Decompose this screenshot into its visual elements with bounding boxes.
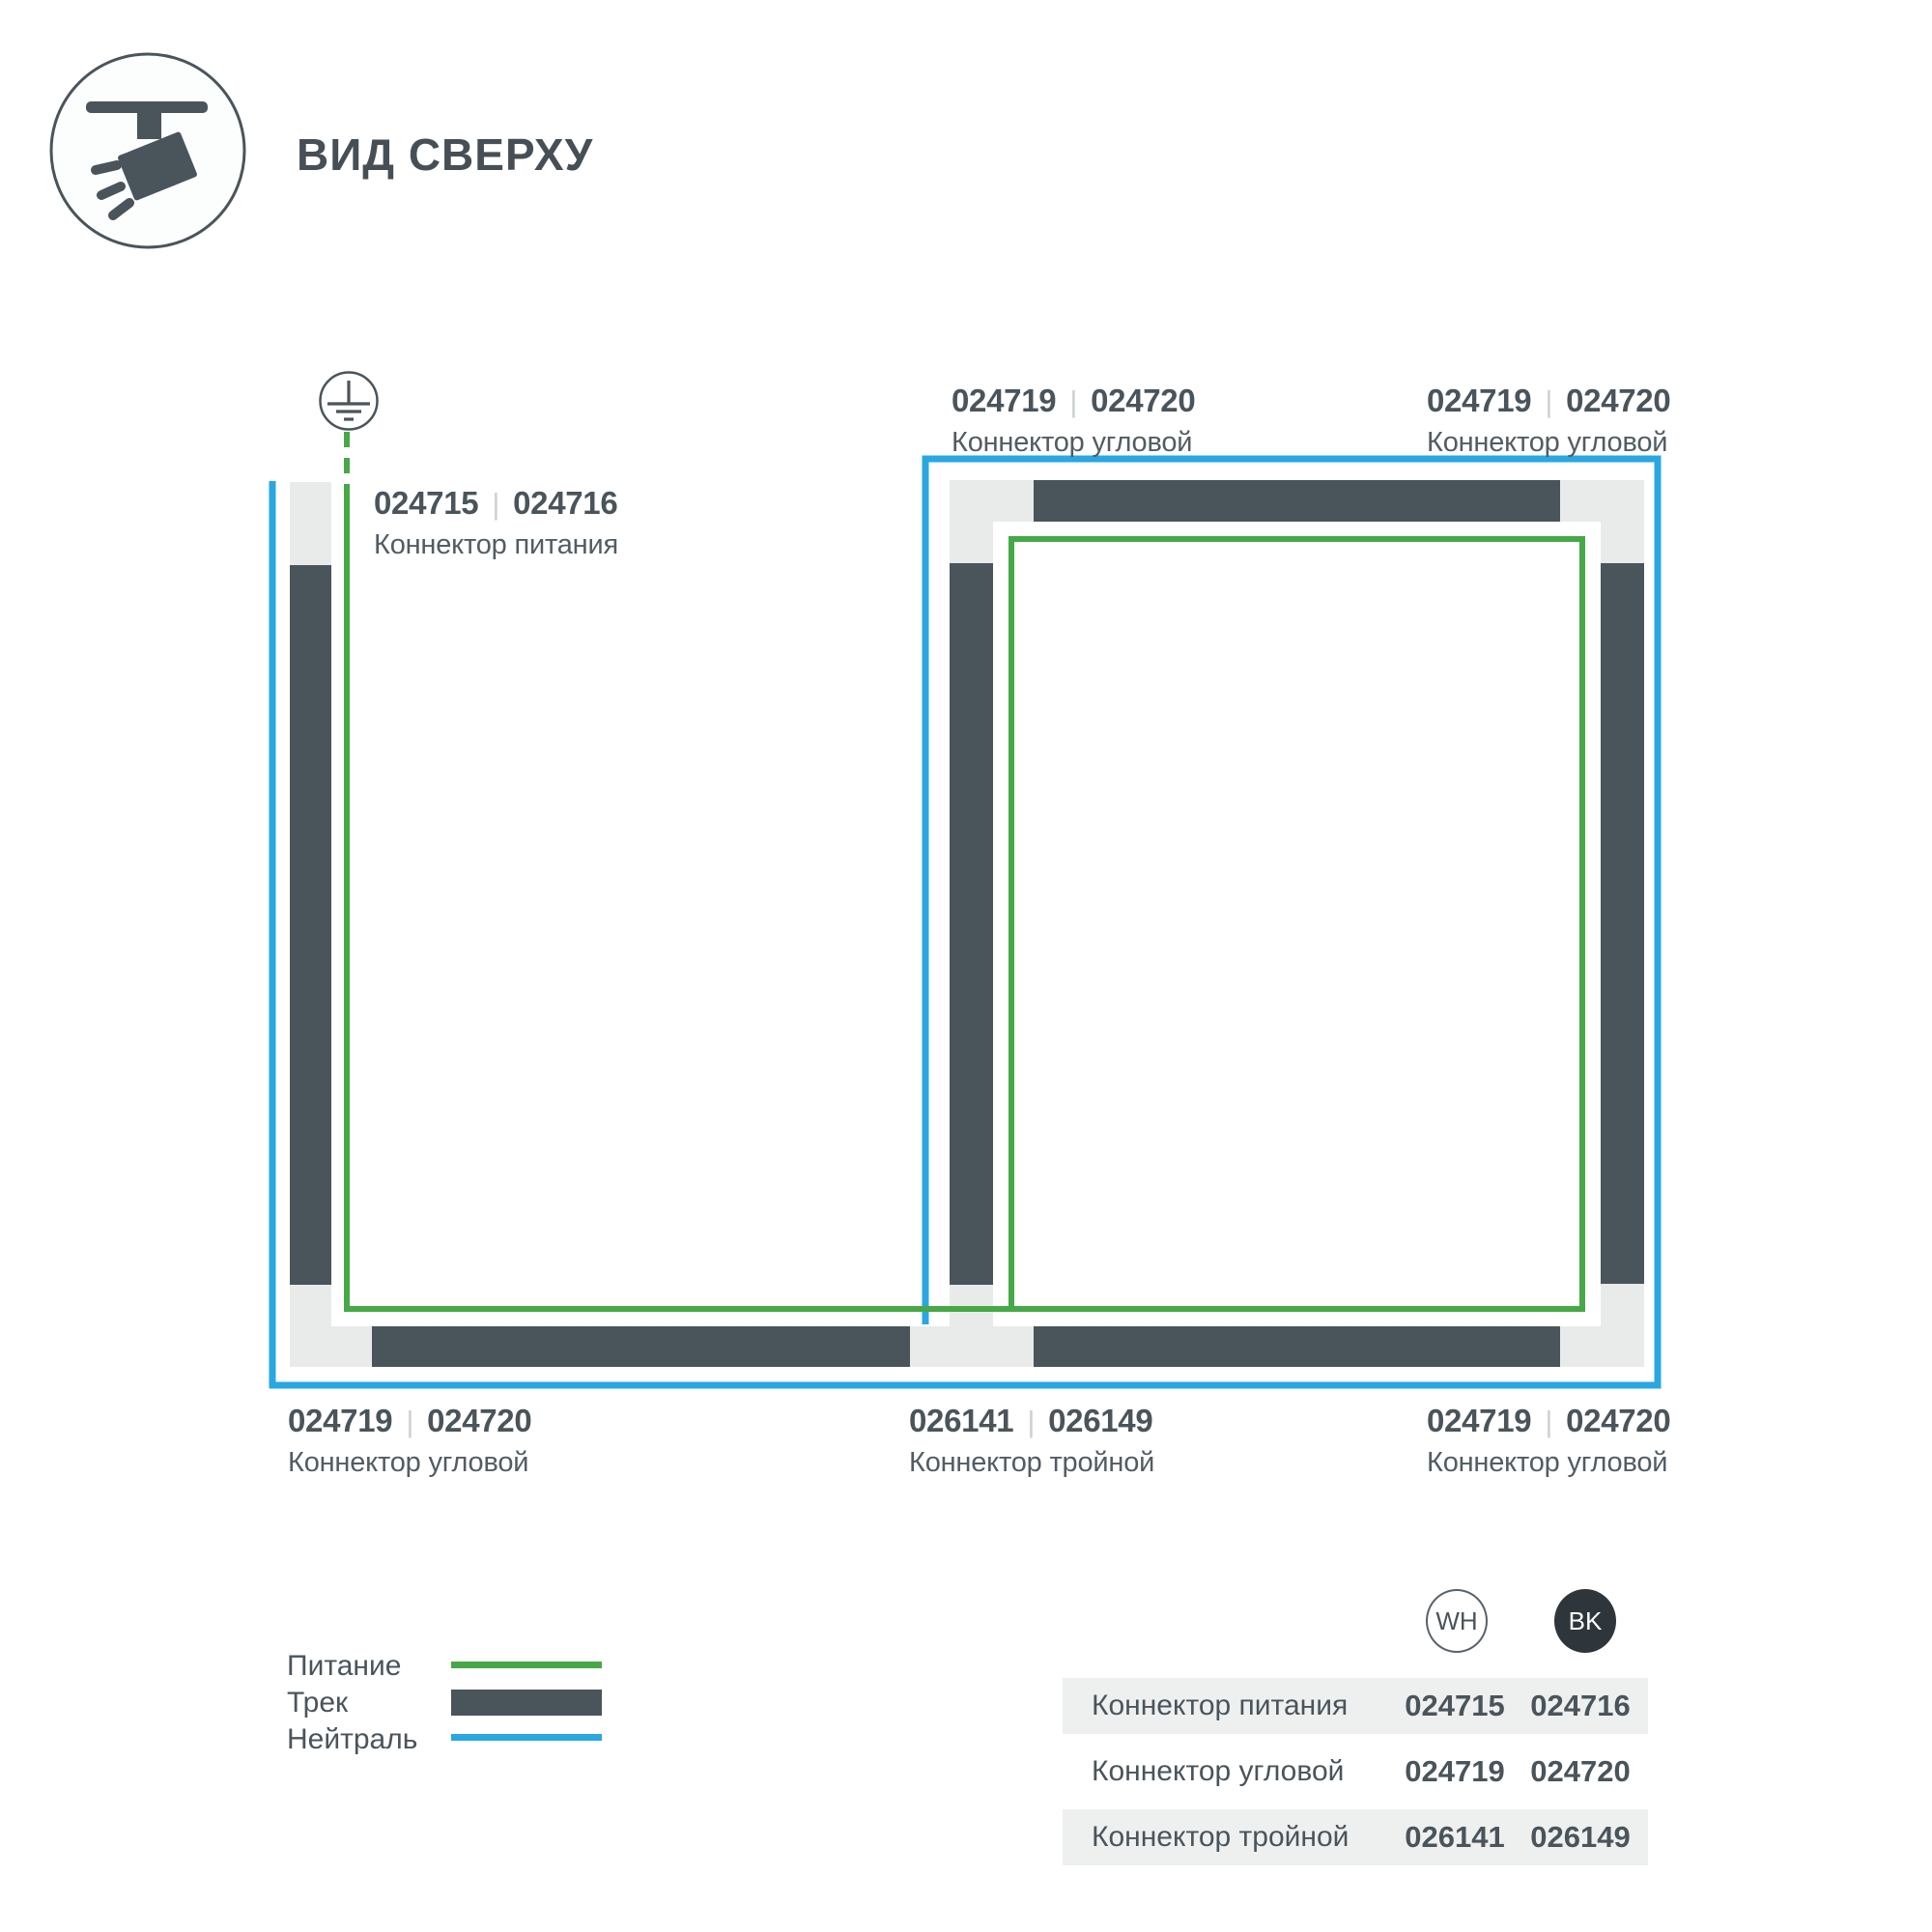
corner-connector-piece-top-left — [950, 480, 993, 563]
code-bk: 024720 — [1566, 1403, 1670, 1438]
table-row-corner-connector: Коннектор угловой 024719 024720 — [1063, 1744, 1648, 1800]
code-separator: | — [392, 1405, 427, 1438]
connector-name: Коннектор угловой — [1427, 427, 1670, 459]
connector-name: Коннектор угловой — [1427, 1447, 1670, 1479]
corner-connector-piece-top-right — [1601, 480, 1644, 563]
code-wh: 024719 — [288, 1403, 392, 1438]
code-bk: 024720 — [427, 1403, 531, 1438]
code-wh: 024719 — [952, 383, 1056, 418]
track-segment-left-vertical — [290, 565, 331, 1285]
page-title: ВИД СВЕРХУ — [297, 128, 593, 181]
code-separator: | — [1056, 384, 1091, 418]
row-code-bk: 026149 — [1513, 1809, 1648, 1865]
bk-badge-label: BK — [1569, 1606, 1603, 1636]
code-separator: | — [1013, 1405, 1048, 1438]
triple-connector-piece — [910, 1326, 1034, 1367]
legend-label-track: Трек — [287, 1687, 348, 1719]
power-connector-piece — [290, 482, 331, 565]
track-segment-right-loop-left — [950, 563, 993, 1285]
power-line — [347, 486, 1011, 1309]
row-name: Коннектор угловой — [1092, 1744, 1344, 1800]
corner-connector-piece-bottom-left — [290, 1326, 372, 1367]
legend-label-power: Питание — [287, 1650, 401, 1683]
legend-swatch-power-line — [451, 1662, 602, 1668]
wh-color-badge: WH — [1426, 1589, 1488, 1653]
code-wh: 026141 — [909, 1403, 1013, 1438]
connector-codes: 024719|024720 — [1427, 1403, 1670, 1439]
track-segment-right-loop-right — [1601, 563, 1644, 1284]
row-code-wh: 024719 — [1387, 1744, 1522, 1800]
code-separator: | — [1531, 1405, 1566, 1438]
connector-label-power: 024715|024716 Коннектор питания — [374, 485, 618, 561]
code-separator: | — [478, 487, 513, 521]
table-row-power-connector: Коннектор питания 024715 024716 — [1063, 1678, 1648, 1734]
connector-codes: 024719|024720 — [1427, 383, 1670, 419]
ground-earth-icon — [318, 370, 380, 432]
code-bk: 024720 — [1091, 383, 1195, 418]
connector-codes: 024719|024720 — [952, 383, 1195, 419]
code-wh: 024719 — [1427, 383, 1531, 418]
code-bk: 024720 — [1566, 383, 1670, 418]
track-spotlight-icon — [49, 52, 246, 249]
code-wh: 024715 — [374, 485, 478, 521]
connector-name: Коннектор питания — [374, 529, 618, 561]
legend-swatch-neutral-line — [451, 1734, 602, 1741]
connector-label-triple: 026141|026149 Коннектор тройной — [909, 1403, 1154, 1479]
connector-codes: 026141|026149 — [909, 1403, 1154, 1439]
triple-connector-piece — [950, 1285, 993, 1326]
connector-codes: 024715|024716 — [374, 485, 618, 522]
code-bk: 024716 — [513, 485, 617, 521]
row-name: Коннектор тройной — [1092, 1809, 1349, 1865]
corner-connector-piece-bottom-right — [1560, 1326, 1644, 1367]
bk-color-badge: BK — [1554, 1589, 1616, 1653]
connector-codes: 024719|024720 — [288, 1403, 531, 1439]
wh-badge-label: WH — [1435, 1606, 1477, 1636]
row-code-bk: 024720 — [1513, 1744, 1648, 1800]
power-line-loop — [1011, 539, 1582, 1309]
code-bk: 026149 — [1048, 1403, 1152, 1438]
track-segment-left-bottom — [372, 1326, 910, 1367]
connector-label-corner-bottom-right: 024719|024720 Коннектор угловой — [1427, 1403, 1670, 1479]
connector-label-corner-bottom-left: 024719|024720 Коннектор угловой — [288, 1403, 531, 1479]
connector-label-corner-top-left: 024719|024720 Коннектор угловой — [952, 383, 1195, 459]
connector-name: Коннектор угловой — [288, 1447, 531, 1479]
page: ВИД СВЕРХУ 024719|024720 Коннектор углов… — [0, 0, 1932, 1932]
row-name: Коннектор питания — [1092, 1678, 1348, 1734]
row-code-wh: 024715 — [1387, 1678, 1522, 1734]
table-row-triple-connector: Коннектор тройной 026141 026149 — [1063, 1809, 1648, 1865]
row-code-wh: 026141 — [1387, 1809, 1522, 1865]
track-segment-right-loop-top — [1034, 480, 1560, 522]
row-code-bk: 024716 — [1513, 1678, 1648, 1734]
legend-label-neutral: Нейтраль — [287, 1723, 417, 1756]
connector-name: Коннектор тройной — [909, 1447, 1154, 1479]
code-separator: | — [1531, 384, 1566, 418]
track-segment-right-loop-bottom — [1034, 1326, 1560, 1367]
connector-name: Коннектор угловой — [952, 427, 1195, 459]
connector-label-corner-top-right: 024719|024720 Коннектор угловой — [1427, 383, 1670, 459]
legend-swatch-track-bar — [451, 1690, 602, 1716]
code-wh: 024719 — [1427, 1403, 1531, 1438]
